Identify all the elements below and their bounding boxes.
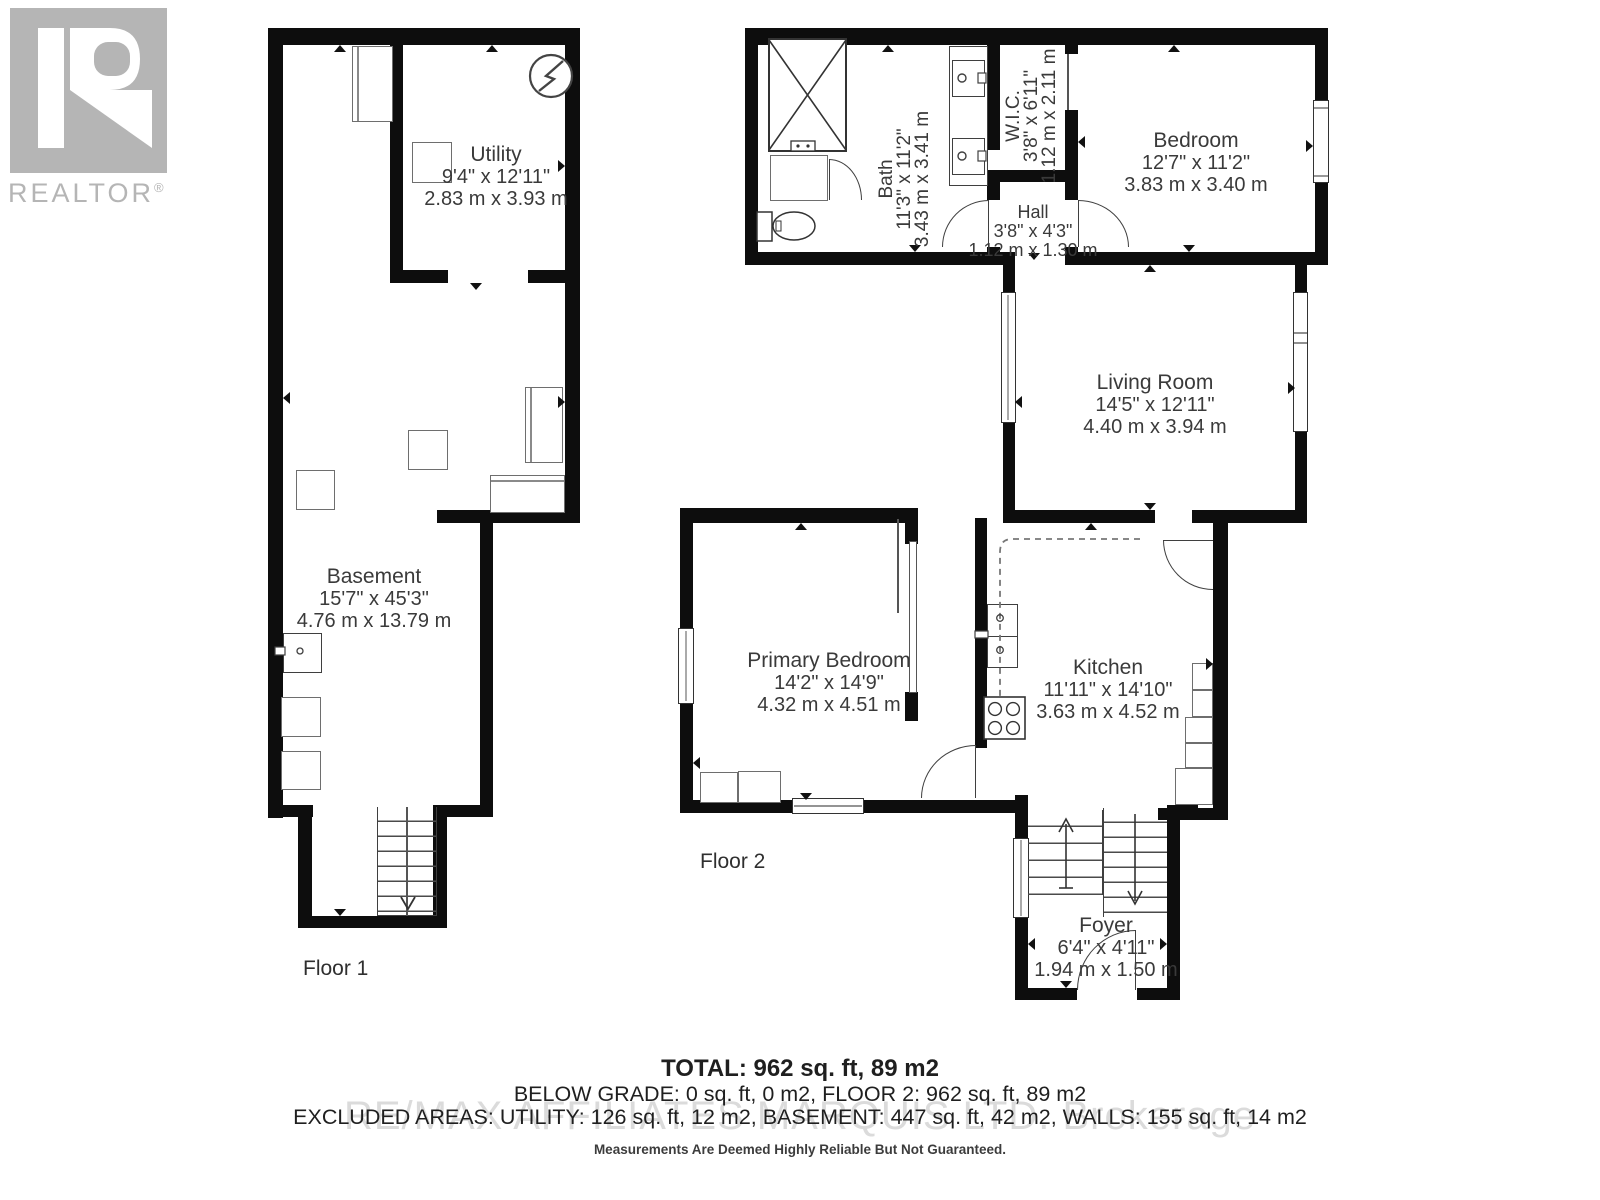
measure-tick xyxy=(1144,503,1156,510)
wall xyxy=(480,510,493,817)
furniture-bench xyxy=(490,475,565,513)
toilet-tank xyxy=(757,212,772,241)
summary-excluded-areas: EXCLUDED AREAS: UTILITY: 126 sq. ft, 12 … xyxy=(0,1105,1600,1130)
room-label-wic: W.I.C. 3'8" x 6'11" 1.12 m x 2.11 m xyxy=(1005,41,1059,191)
measure-tick xyxy=(486,45,498,52)
measure-tick xyxy=(1144,265,1156,272)
wall xyxy=(1065,45,1078,54)
stair-step xyxy=(1185,743,1213,768)
room-label-primary-bedroom: Primary Bedroom 14'2" x 14'9" 4.32 m x 4… xyxy=(699,650,959,716)
furniture-box xyxy=(408,430,448,470)
toilet-bowl xyxy=(773,212,815,240)
furniture-box xyxy=(296,470,335,510)
wall xyxy=(528,270,580,283)
stove-burner-icon xyxy=(989,722,1002,735)
wall xyxy=(987,45,1000,150)
realtor-logo-icon xyxy=(10,8,167,178)
registered-mark: ® xyxy=(154,180,167,195)
wall xyxy=(905,508,918,544)
wic-sliding-door-line xyxy=(1067,54,1069,110)
wall xyxy=(268,805,313,817)
laundry-sink xyxy=(283,633,322,673)
stove-burner-icon xyxy=(1007,722,1020,735)
window-living-right xyxy=(1293,292,1308,432)
floor2-label: Floor 2 xyxy=(700,850,765,874)
appliance-dryer xyxy=(281,751,321,790)
window-living-left xyxy=(1001,292,1016,423)
room-label-bedroom: Bedroom 12'7" x 11'2" 3.83 m x 3.40 m xyxy=(1076,130,1316,196)
door-arc-kitchen xyxy=(1163,540,1213,590)
window-foyer xyxy=(1013,838,1029,918)
door-arc-bath-closet xyxy=(829,159,862,200)
measure-tick xyxy=(800,793,812,800)
stair-step xyxy=(1175,768,1213,805)
measure-tick xyxy=(558,396,565,408)
summary-total: TOTAL: 962 sq. ft, 89 m2 xyxy=(0,1055,1600,1083)
wall xyxy=(268,28,580,45)
measure-tick xyxy=(334,45,346,52)
measure-tick xyxy=(1288,382,1295,394)
room-label-living-room: Living Room 14'5" x 12'11" 4.40 m x 3.94… xyxy=(1035,372,1275,438)
toilet-seat-hinge xyxy=(776,221,781,231)
realtor-wordmark: REALTOR® xyxy=(8,178,167,209)
vanity-sink xyxy=(952,60,985,97)
room-label-foyer: Foyer 6'4" x 4'11" 1.94 m x 1.50 m xyxy=(986,915,1226,981)
room-label-utility: Utility 9'4" x 12'11" 2.83 m x 3.93 m xyxy=(376,144,616,210)
appliance-washer xyxy=(281,697,321,737)
measure-tick xyxy=(1183,245,1195,252)
wall xyxy=(390,270,448,283)
window-primary-left xyxy=(678,628,694,704)
floor-plan-canvas: REALTOR® xyxy=(0,0,1600,1200)
measure-tick xyxy=(882,45,894,52)
measure-tick xyxy=(470,283,482,290)
measure-tick xyxy=(334,909,346,916)
furniture-dresser xyxy=(738,771,781,803)
vanity-sink xyxy=(952,138,985,175)
wall xyxy=(1015,988,1077,1000)
wall xyxy=(298,916,447,928)
wall xyxy=(298,805,312,928)
wall xyxy=(680,508,918,523)
stairs-down-flight xyxy=(1103,808,1167,917)
measure-tick xyxy=(1015,396,1022,408)
measure-tick xyxy=(693,757,700,769)
measure-tick xyxy=(795,523,807,530)
cabinet-detail-line xyxy=(357,47,359,121)
door-arc-primary-kitchen xyxy=(921,745,976,798)
shower xyxy=(768,38,847,152)
measure-tick xyxy=(1168,45,1180,52)
bench-detail-line xyxy=(491,480,564,482)
kitchen-sink xyxy=(987,604,1018,637)
disclaimer-text: Measurements Are Deemed Highly Reliable … xyxy=(0,1142,1600,1157)
room-label-basement: Basement 15'7" x 45'3" 4.76 m x 13.79 m xyxy=(254,566,494,632)
stairs-center-rail xyxy=(406,807,408,916)
room-label-hall: Hall 3'8" x 4'3" 1.12 m x 1.30 m xyxy=(913,203,1153,260)
floor1-label: Floor 1 xyxy=(303,957,368,981)
measure-tick xyxy=(1060,981,1072,988)
stairs-up-flight xyxy=(1028,810,1103,895)
window-primary-bottom xyxy=(792,798,864,814)
furniture-tall-cabinet xyxy=(352,46,393,122)
wall xyxy=(1192,510,1307,523)
wall xyxy=(745,28,758,265)
measure-tick xyxy=(1085,523,1097,530)
electrical-bolt-icon xyxy=(539,61,563,91)
wall xyxy=(1137,988,1180,1000)
wall xyxy=(1003,510,1155,523)
linen-closet xyxy=(770,155,828,201)
measure-tick xyxy=(283,392,290,404)
summary-below-grade: BELOW GRADE: 0 sq. ft, 0 m2, FLOOR 2: 96… xyxy=(0,1082,1600,1107)
room-label-kitchen: Kitchen 11'11" x 14'10" 3.63 m x 4.52 m xyxy=(988,657,1228,723)
shelf-detail-line xyxy=(530,388,532,462)
furniture-nightstand xyxy=(700,772,738,803)
wall xyxy=(975,518,987,748)
closet-partition-line xyxy=(897,519,899,613)
